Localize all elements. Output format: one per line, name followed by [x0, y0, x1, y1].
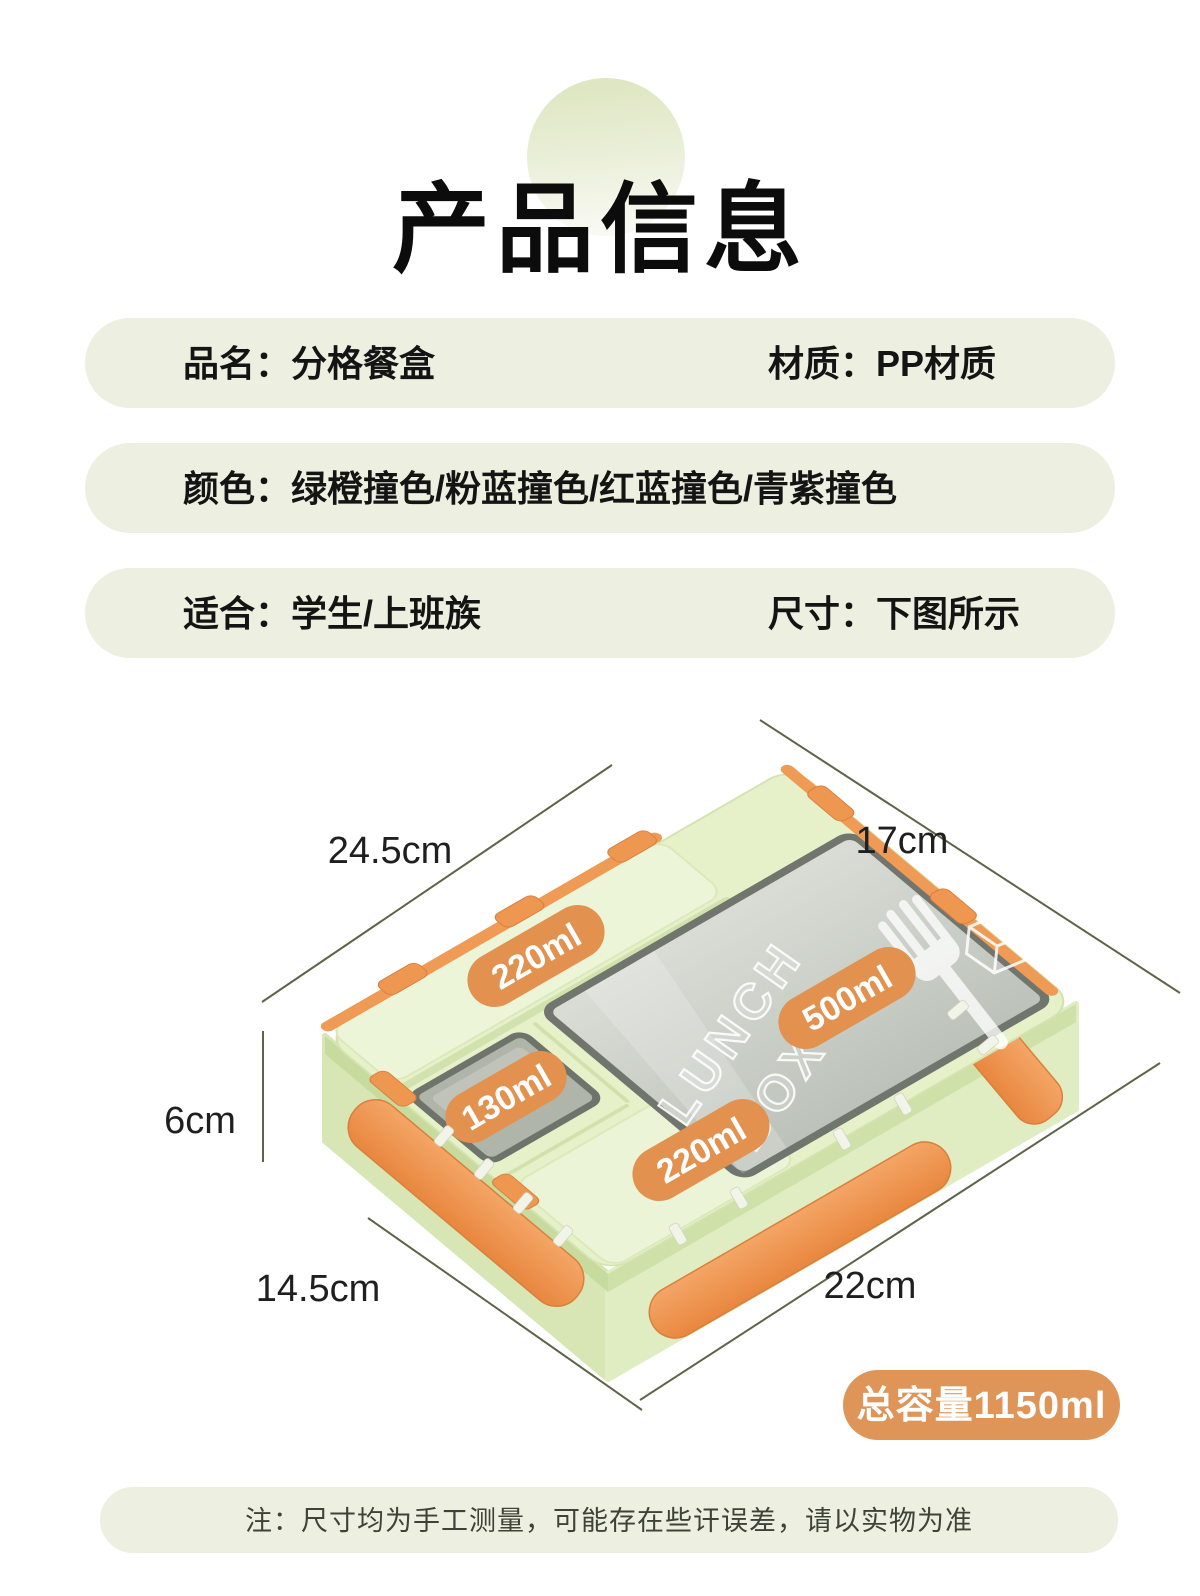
- lunchbox-figure: LUNCH BOX+ 220ml 130ml 500ml 220ml: [0, 700, 1200, 1480]
- color-options-field: 颜色：绿橙撞色/粉蓝撞色/红蓝撞色/青紫撞色: [183, 443, 897, 533]
- info-bar-name-material: 品名：分格餐盒 材质：PP材质: [85, 318, 1115, 408]
- size-note-field: 尺寸：下图所示: [768, 568, 1020, 658]
- dimension-label-bottom-right: 22cm: [824, 1265, 917, 1307]
- measurement-disclaimer: 注：尺寸均为手工测量，可能存在些讦误差，请以实物为准: [100, 1487, 1118, 1553]
- info-bar-suitable-size: 适合：学生/上班族 尺寸：下图所示: [85, 568, 1115, 658]
- dimension-label-left: 6cm: [164, 1100, 236, 1142]
- material-field: 材质：PP材质: [768, 318, 996, 408]
- dimension-label-top-left: 24.5cm: [328, 830, 453, 872]
- info-bar-colors: 颜色：绿橙撞色/粉蓝撞色/红蓝撞色/青紫撞色: [85, 443, 1115, 533]
- suitable-for-field: 适合：学生/上班族: [183, 568, 481, 658]
- product-name-field: 品名：分格餐盒: [183, 318, 435, 408]
- total-capacity-badge: 总容量1150ml: [843, 1370, 1120, 1440]
- page-title: 产品信息: [0, 174, 1200, 284]
- dimension-label-top-right: 17cm: [856, 820, 949, 862]
- dimension-label-bottom-left: 14.5cm: [256, 1268, 381, 1310]
